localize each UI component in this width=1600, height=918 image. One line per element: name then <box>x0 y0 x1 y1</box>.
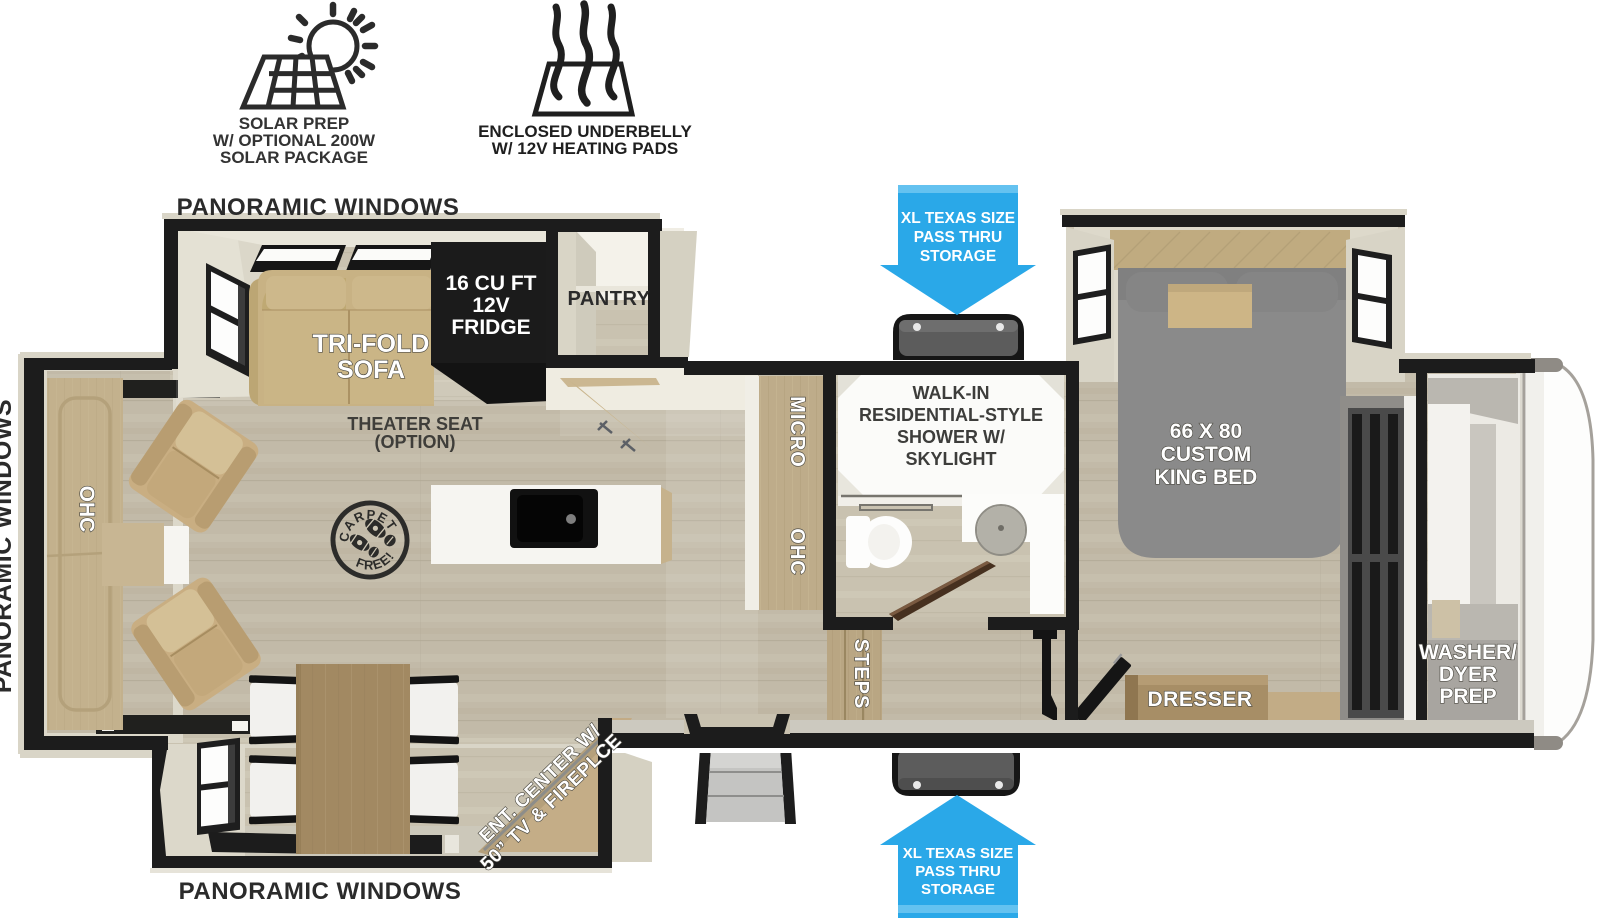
svg-text:OHC: OHC <box>75 486 98 533</box>
svg-text:16 CU FT: 16 CU FT <box>445 272 536 295</box>
svg-text:W/ 12V HEATING PADS: W/ 12V HEATING PADS <box>492 139 678 158</box>
svg-text:XL TEXAS SIZE: XL TEXAS SIZE <box>901 210 1015 227</box>
svg-text:SHOWER W/: SHOWER W/ <box>897 427 1005 447</box>
svg-text:DRESSER: DRESSER <box>1147 688 1252 711</box>
svg-text:PANORAMIC WINDOWS: PANORAMIC WINDOWS <box>177 194 460 221</box>
svg-text:PASS THRU: PASS THRU <box>915 863 1001 880</box>
svg-text:XL TEXAS SIZE: XL TEXAS SIZE <box>903 845 1014 862</box>
svg-text:RESIDENTIAL-STYLE: RESIDENTIAL-STYLE <box>859 405 1043 425</box>
svg-text:CUSTOM: CUSTOM <box>1161 443 1252 466</box>
svg-text:STORAGE: STORAGE <box>920 248 996 265</box>
svg-text:WASHER/: WASHER/ <box>1419 641 1517 664</box>
svg-text:PANTRY: PANTRY <box>568 288 651 310</box>
svg-text:SKYLIGHT: SKYLIGHT <box>905 449 996 469</box>
svg-text:PREP: PREP <box>1439 685 1496 708</box>
svg-text:KING BED: KING BED <box>1155 466 1258 489</box>
svg-text:PASS THRU: PASS THRU <box>914 229 1002 246</box>
svg-text:66 X 80: 66 X 80 <box>1170 420 1242 443</box>
svg-text:SOLAR PACKAGE: SOLAR PACKAGE <box>220 148 368 167</box>
svg-text:STEPS: STEPS <box>850 639 872 710</box>
svg-text:WALK-IN: WALK-IN <box>913 383 990 403</box>
svg-text:TRI-FOLD: TRI-FOLD <box>313 330 430 358</box>
svg-text:OHC: OHC <box>786 528 808 575</box>
svg-text:STORAGE: STORAGE <box>921 881 995 898</box>
svg-text:(OPTION): (OPTION) <box>375 432 456 452</box>
svg-text:DYER: DYER <box>1439 663 1497 686</box>
svg-text:PANORAMIC WINDOWS: PANORAMIC WINDOWS <box>0 399 17 693</box>
svg-text:MICRO: MICRO <box>786 396 808 468</box>
svg-text:FRIDGE: FRIDGE <box>451 316 530 339</box>
svg-text:PANORAMIC WINDOWS: PANORAMIC WINDOWS <box>179 878 462 905</box>
svg-text:12V: 12V <box>472 294 509 317</box>
svg-text:THEATER SEAT: THEATER SEAT <box>347 414 482 434</box>
svg-text:SOFA: SOFA <box>337 356 405 384</box>
